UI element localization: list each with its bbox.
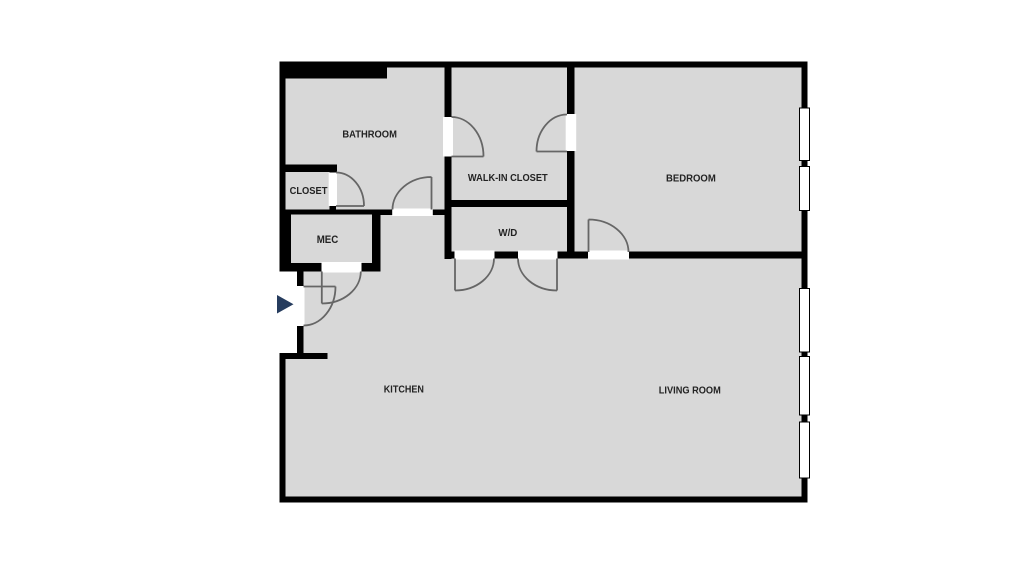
svg-text:KITCHEN: KITCHEN [384,384,424,396]
svg-text:CLOSET: CLOSET [290,185,328,197]
svg-text:WALK-IN CLOSET: WALK-IN CLOSET [468,172,548,184]
svg-text:BATHROOM: BATHROOM [342,128,397,140]
svg-text:MEC: MEC [317,234,339,246]
svg-text:BEDROOM: BEDROOM [666,172,716,184]
svg-text:W/D: W/D [498,227,517,239]
svg-text:LIVING ROOM: LIVING ROOM [659,384,721,396]
